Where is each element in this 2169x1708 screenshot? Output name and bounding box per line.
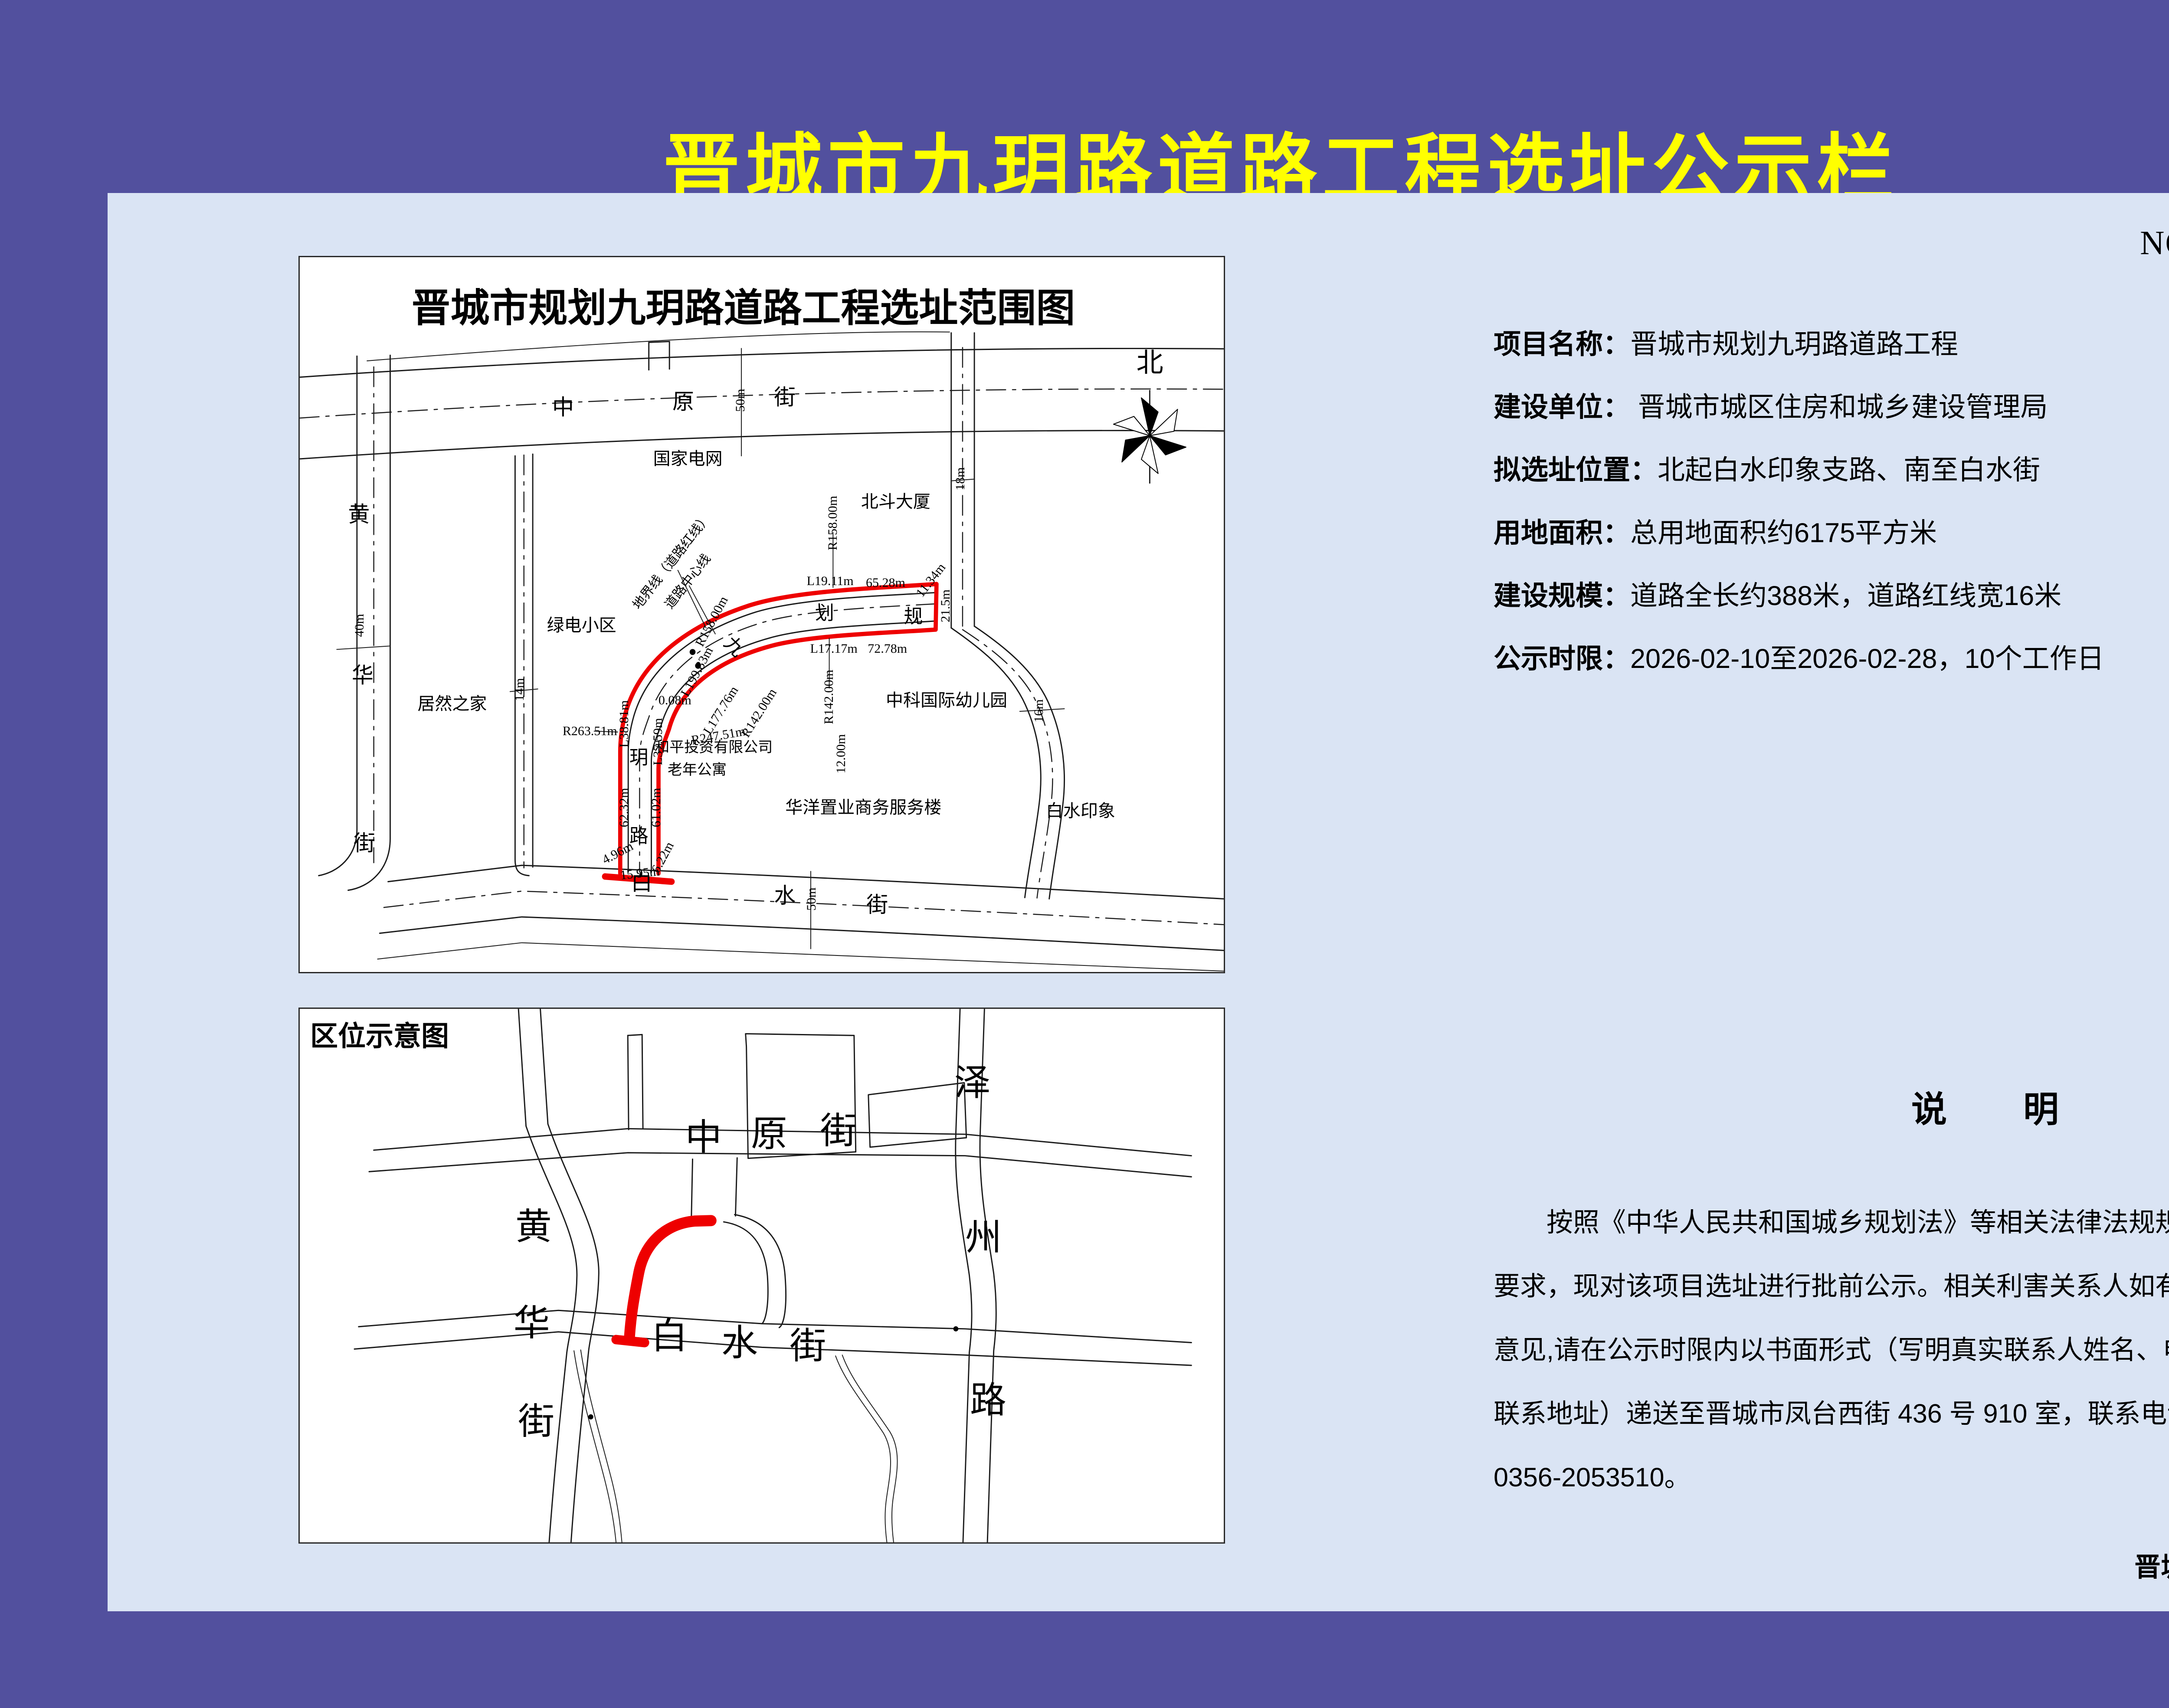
map-label: 0.08m — [659, 694, 691, 707]
map-label: 62.32m — [618, 788, 631, 828]
map-label: R263.51m — [563, 725, 617, 738]
notice-line: 意见,请在公示时限内以书面形式（写明真实联系人姓名、电话、 — [1494, 1328, 2169, 1367]
map-label: 黄 — [515, 1209, 552, 1246]
location-sketch-map: 区位示意图 黄华街中原街泽州路白水街 — [298, 1008, 1225, 1544]
info-value: 总用地面积约6175平方米 — [1630, 518, 1937, 548]
map-label: 18m — [954, 467, 967, 490]
map-label: 街 — [866, 894, 888, 916]
map-label: 州 — [965, 1220, 1002, 1256]
map-label: 路 — [629, 827, 649, 846]
map-label: 九 — [721, 633, 747, 660]
map-label: 14m — [513, 678, 526, 701]
map-label: 街 — [820, 1113, 857, 1150]
map-label: 路 — [970, 1383, 1006, 1419]
map-label: 划 — [815, 604, 834, 623]
map-label: 北 — [1137, 350, 1163, 376]
map-label: 晋城市规划九玥路道路工程选址范围图 — [411, 289, 1075, 328]
map-label: 50m — [734, 389, 747, 412]
info-value: 晋城市规划九玥路道路工程 — [1630, 329, 1958, 360]
info-row: 公示时限：2026-02-10至2026-02-28，10个工作日 — [1494, 637, 2169, 676]
map-label: R158.00m — [693, 595, 731, 649]
map-label: 北斗大厦 — [861, 493, 931, 510]
map-label: L38.81m — [618, 700, 631, 748]
map-label: R142.00m — [822, 670, 835, 724]
map-label: L199.83m — [678, 645, 715, 699]
info-row: 拟选址位置：北起白水印象支路、南至白水街 — [1494, 448, 2169, 488]
info-label: 建设规模： — [1494, 581, 1630, 611]
info-row: 项目名称：晋城市规划九玥路道路工程 — [1494, 322, 2169, 362]
info-value: 道路全长约388米，道路红线宽16米 — [1630, 581, 2061, 611]
map-label: 72.78m — [868, 642, 907, 655]
map-label: 白 — [651, 1319, 688, 1355]
map-label: 21.5m — [939, 589, 952, 622]
map-label: 水 — [721, 1325, 758, 1362]
map-label: 规 — [904, 607, 923, 626]
info-label: 项目名称： — [1494, 329, 1630, 360]
map-label: L17.17m — [810, 642, 858, 655]
map-label: 50m — [805, 887, 818, 910]
map-label: 街 — [790, 1328, 826, 1365]
info-value: 2026-02-10至2026-02-28，10个工作日 — [1630, 644, 2104, 674]
notice-title: 说 明 — [1494, 1080, 2169, 1132]
map-label: 40m — [353, 614, 366, 637]
map-label: 65.28m — [866, 576, 905, 589]
notice-line: 联系地址）递送至晋城市凤台西街 436 号 910 室，联系电话： — [1494, 1392, 2169, 1430]
map-label: 水 — [774, 885, 796, 906]
map-label: 玥 — [629, 748, 649, 767]
notice-section: 说 明 按照《中华人民共和国城乡规划法》等相关法律法规规定要求，现对该项目选址进… — [1494, 1080, 2169, 1584]
doc-number: NO;选址-2026-JG-07 — [2140, 216, 2169, 264]
notice-line: 要求，现对该项目选址进行批前公示。相关利害关系人如有不同 — [1494, 1264, 2169, 1303]
content-panel: NO;选址-2026-JG-07 — [108, 193, 2169, 1611]
info-value: 晋城市城区住房和城乡建设管理局 — [1630, 392, 2048, 422]
notice-body: 按照《中华人民共和国城乡规划法》等相关法律法规规定要求，现对该项目选址进行批前公… — [1494, 1201, 2169, 1494]
notice-board-page: { "colors":{"background":"#52509E","pane… — [0, 0, 2169, 1708]
notice-line: 按照《中华人民共和国城乡规划法》等相关法律法规规定 — [1494, 1201, 2169, 1239]
map-label: 原 — [672, 391, 694, 412]
map-label: 4.96m — [600, 840, 635, 867]
info-row: 用地面积：总用地面积约6175平方米 — [1494, 511, 2169, 550]
info-label: 拟选址位置： — [1494, 455, 1658, 485]
map-label: 泽 — [954, 1065, 991, 1102]
map-label: 老年公寓 — [668, 763, 727, 778]
map-label: 华 — [352, 664, 374, 686]
map-label: 国家电网 — [653, 450, 723, 468]
map-label: 16m — [1032, 700, 1045, 723]
issuer-footer: 晋城市规划和自然资源局监制 — [1494, 1545, 2169, 1584]
notice-line: 0356-2053510。 — [1494, 1456, 2169, 1494]
site-range-map-labels: 晋城市规划九玥路道路工程选址范围图北中原街50m黄华街40m白水街50m14m1… — [300, 257, 1224, 972]
map-label: 中 — [552, 396, 574, 418]
site-range-map: 晋城市规划九玥路道路工程选址范围图北中原街50m黄华街40m白水街50m14m1… — [298, 256, 1225, 973]
map-label: 61.02m — [650, 788, 663, 828]
map-label: 中科国际幼儿园 — [886, 692, 1007, 709]
map-label: 华洋置业商务服务楼 — [785, 799, 941, 816]
map-label: L19.11m — [807, 575, 854, 588]
map-label: 中 — [685, 1120, 722, 1156]
map-label: 白水印象 — [1046, 802, 1115, 820]
info-label: 用地面积： — [1494, 518, 1630, 548]
map-label: 原 — [751, 1116, 787, 1153]
map-label: 绿电小区 — [547, 617, 616, 634]
map-label: 华 — [514, 1306, 550, 1342]
info-label: 建设单位： — [1494, 392, 1630, 422]
project-info: 项目名称：晋城市规划九玥路道路工程建设单位： 晋城市城区住房和城乡建设管理局拟选… — [1494, 322, 2169, 700]
map-label: 15.95m — [619, 865, 660, 882]
location-sketch-labels: 黄华街中原街泽州路白水街 — [300, 1009, 1224, 1542]
map-label: 街 — [518, 1404, 554, 1440]
map-label: 12.00m — [835, 734, 848, 774]
map-label: 居然之家 — [417, 695, 487, 713]
map-label: L37.59m — [652, 718, 665, 766]
info-label: 公示时限： — [1494, 644, 1630, 674]
info-value: 北起白水印象支路、南至白水街 — [1658, 455, 2040, 485]
map-label: R158.00m — [826, 496, 839, 550]
info-row: 建设单位： 晋城市城区住房和城乡建设管理局 — [1494, 385, 2169, 425]
map-label: 黄 — [348, 504, 370, 525]
info-row: 建设规模：道路全长约388米，道路红线宽16米 — [1494, 574, 2169, 613]
map-label: 街 — [774, 386, 796, 408]
map-label: 街 — [354, 832, 375, 854]
